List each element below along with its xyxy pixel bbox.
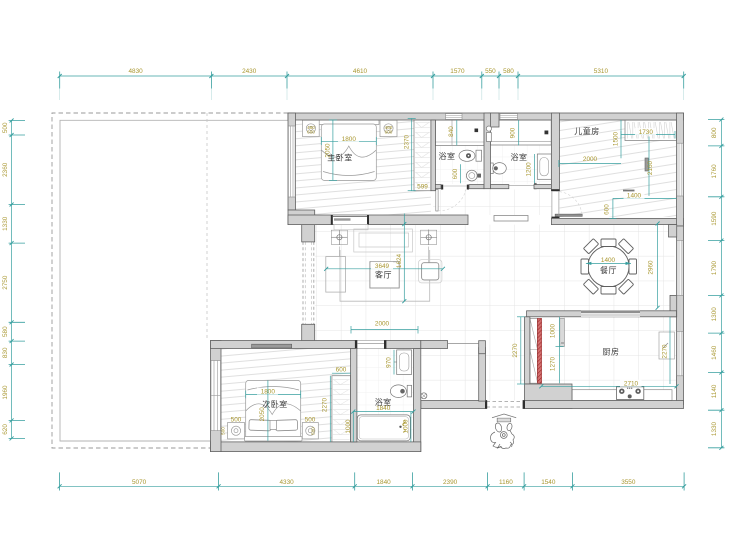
svg-text:2960: 2960 — [648, 260, 655, 275]
svg-text:1790: 1790 — [711, 260, 718, 275]
svg-text:500: 500 — [221, 427, 226, 435]
svg-text:500: 500 — [231, 417, 242, 424]
svg-text:1140: 1140 — [711, 384, 718, 398]
svg-text:500: 500 — [305, 417, 316, 424]
svg-text:3649: 3649 — [375, 263, 390, 270]
svg-text:2000: 2000 — [583, 156, 598, 163]
svg-text:800: 800 — [711, 127, 718, 138]
svg-text:1000: 1000 — [550, 323, 557, 338]
svg-text:2710: 2710 — [624, 381, 639, 388]
svg-text:客厅: 客厅 — [375, 269, 392, 279]
svg-text:1960: 1960 — [2, 385, 9, 400]
svg-text:1730: 1730 — [639, 129, 654, 136]
svg-text:580: 580 — [2, 326, 9, 337]
svg-text:1160: 1160 — [499, 479, 513, 486]
svg-text:1570: 1570 — [450, 68, 465, 75]
svg-text:3550: 3550 — [621, 479, 636, 486]
svg-text:2160: 2160 — [647, 160, 654, 175]
svg-text:2000: 2000 — [375, 321, 390, 328]
svg-text:1760: 1760 — [711, 164, 718, 179]
svg-text:1460: 1460 — [711, 345, 718, 360]
svg-text:580: 580 — [503, 68, 514, 75]
svg-text:2430: 2430 — [242, 68, 257, 75]
svg-text:500: 500 — [311, 427, 316, 435]
svg-text:1330: 1330 — [711, 421, 718, 436]
svg-text:浴室: 浴室 — [511, 152, 528, 162]
svg-text:餐厅: 餐厅 — [600, 266, 617, 275]
svg-text:2360: 2360 — [2, 162, 9, 177]
svg-text:1540: 1540 — [541, 479, 556, 486]
svg-text:2370: 2370 — [404, 134, 411, 149]
svg-text:1840: 1840 — [376, 479, 391, 486]
svg-text:620: 620 — [2, 424, 9, 435]
svg-text:600: 600 — [604, 204, 611, 215]
svg-text:浴室: 浴室 — [375, 397, 392, 407]
svg-text:2750: 2750 — [2, 275, 9, 290]
svg-text:1000: 1000 — [402, 419, 409, 434]
svg-text:2390: 2390 — [443, 479, 458, 486]
svg-text:1500: 1500 — [612, 131, 619, 146]
svg-text:4610: 4610 — [353, 68, 368, 75]
svg-text:2270: 2270 — [661, 344, 668, 359]
svg-text:600: 600 — [336, 366, 347, 373]
svg-text:1330: 1330 — [2, 216, 9, 231]
svg-text:儿童房: 儿童房 — [574, 126, 600, 136]
svg-text:500: 500 — [2, 122, 9, 133]
svg-text:600: 600 — [385, 130, 393, 135]
svg-text:2270: 2270 — [322, 397, 329, 412]
svg-text:5310: 5310 — [594, 68, 609, 75]
svg-text:厨房: 厨房 — [603, 346, 620, 356]
svg-text:2270: 2270 — [512, 343, 519, 358]
svg-text:1400: 1400 — [627, 193, 642, 200]
svg-text:4330: 4330 — [279, 479, 294, 486]
svg-text:600: 600 — [307, 130, 315, 135]
svg-text:1590: 1590 — [711, 211, 718, 226]
svg-text:5070: 5070 — [132, 479, 147, 486]
svg-text:840: 840 — [448, 126, 455, 137]
svg-text:1300: 1300 — [711, 307, 718, 322]
svg-text:550: 550 — [485, 68, 496, 75]
svg-text:830: 830 — [2, 347, 9, 358]
svg-text:1800: 1800 — [342, 136, 357, 143]
svg-text:1624: 1624 — [396, 253, 403, 268]
svg-text:1200: 1200 — [526, 162, 533, 177]
svg-text:浴室: 浴室 — [439, 151, 456, 161]
svg-text:4830: 4830 — [128, 68, 143, 75]
svg-text:600: 600 — [452, 168, 459, 179]
svg-text:主卧室: 主卧室 — [327, 153, 353, 163]
svg-text:次卧室: 次卧室 — [262, 399, 288, 409]
svg-text:1270: 1270 — [550, 356, 557, 371]
svg-text:1400: 1400 — [601, 257, 616, 264]
svg-text:599: 599 — [417, 183, 428, 190]
svg-text:970: 970 — [385, 357, 392, 368]
svg-text:1000: 1000 — [345, 419, 352, 434]
svg-text:900: 900 — [510, 127, 517, 138]
